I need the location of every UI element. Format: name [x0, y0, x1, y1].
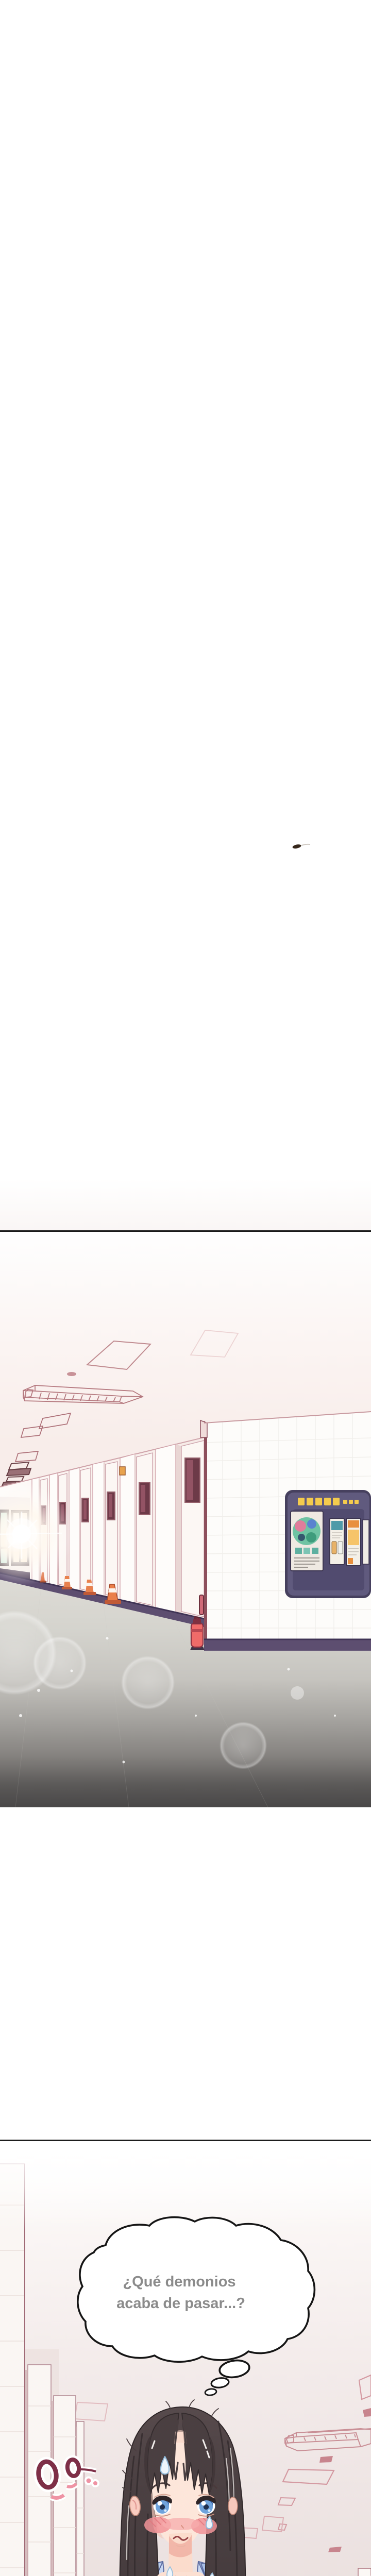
svg-text:acaba de pasar...?: acaba de pasar...?: [116, 2295, 245, 2312]
svg-text:¿Qué demonios: ¿Qué demonios: [123, 2274, 235, 2290]
